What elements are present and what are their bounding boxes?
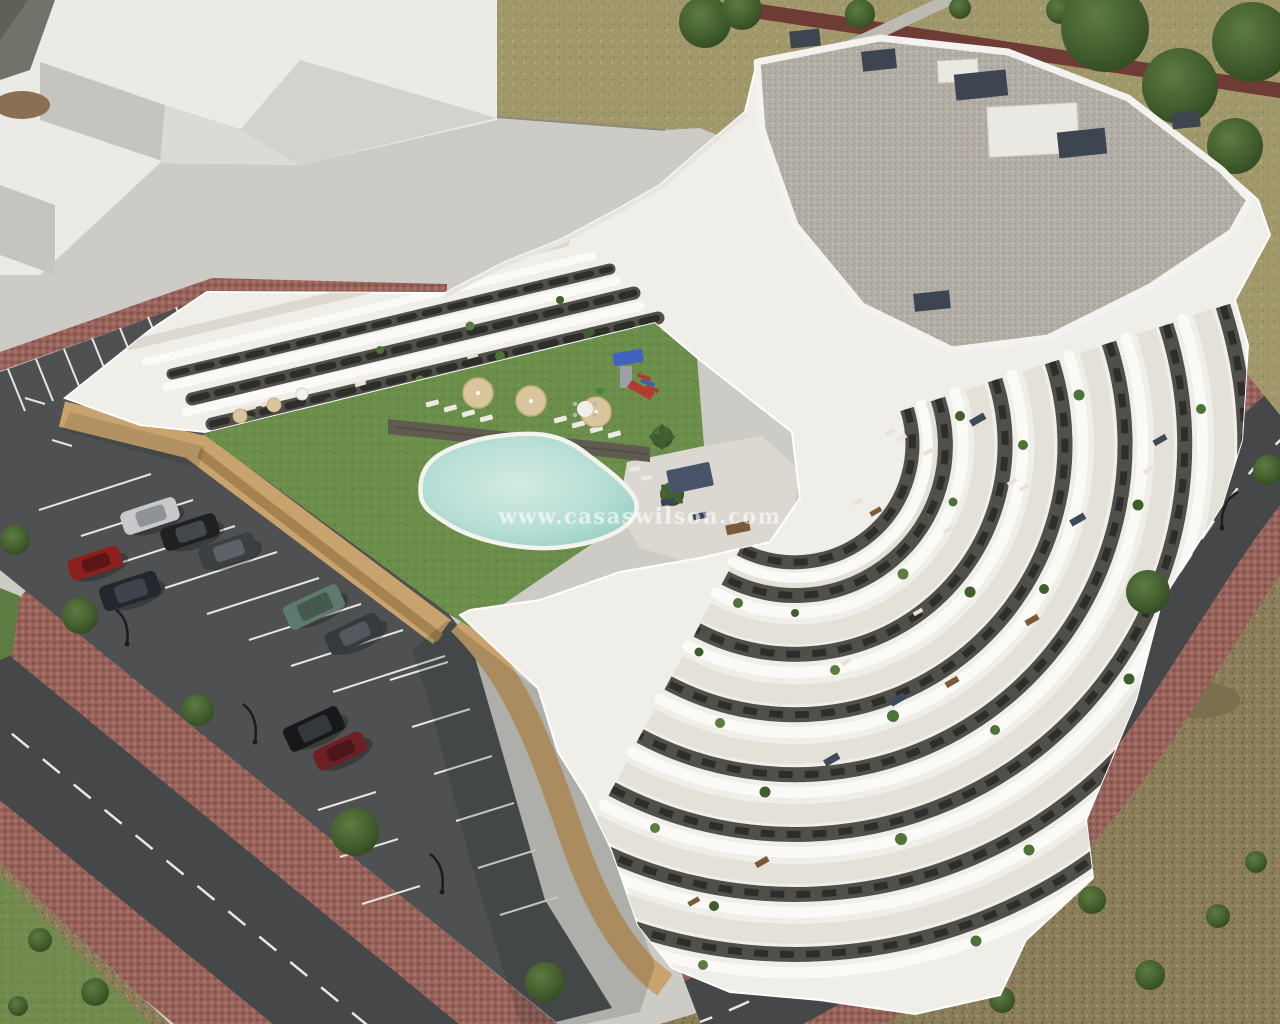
aerial-render: www.casaswilson.com — [0, 0, 1280, 1024]
watermark: www.casaswilson.com — [498, 504, 781, 529]
